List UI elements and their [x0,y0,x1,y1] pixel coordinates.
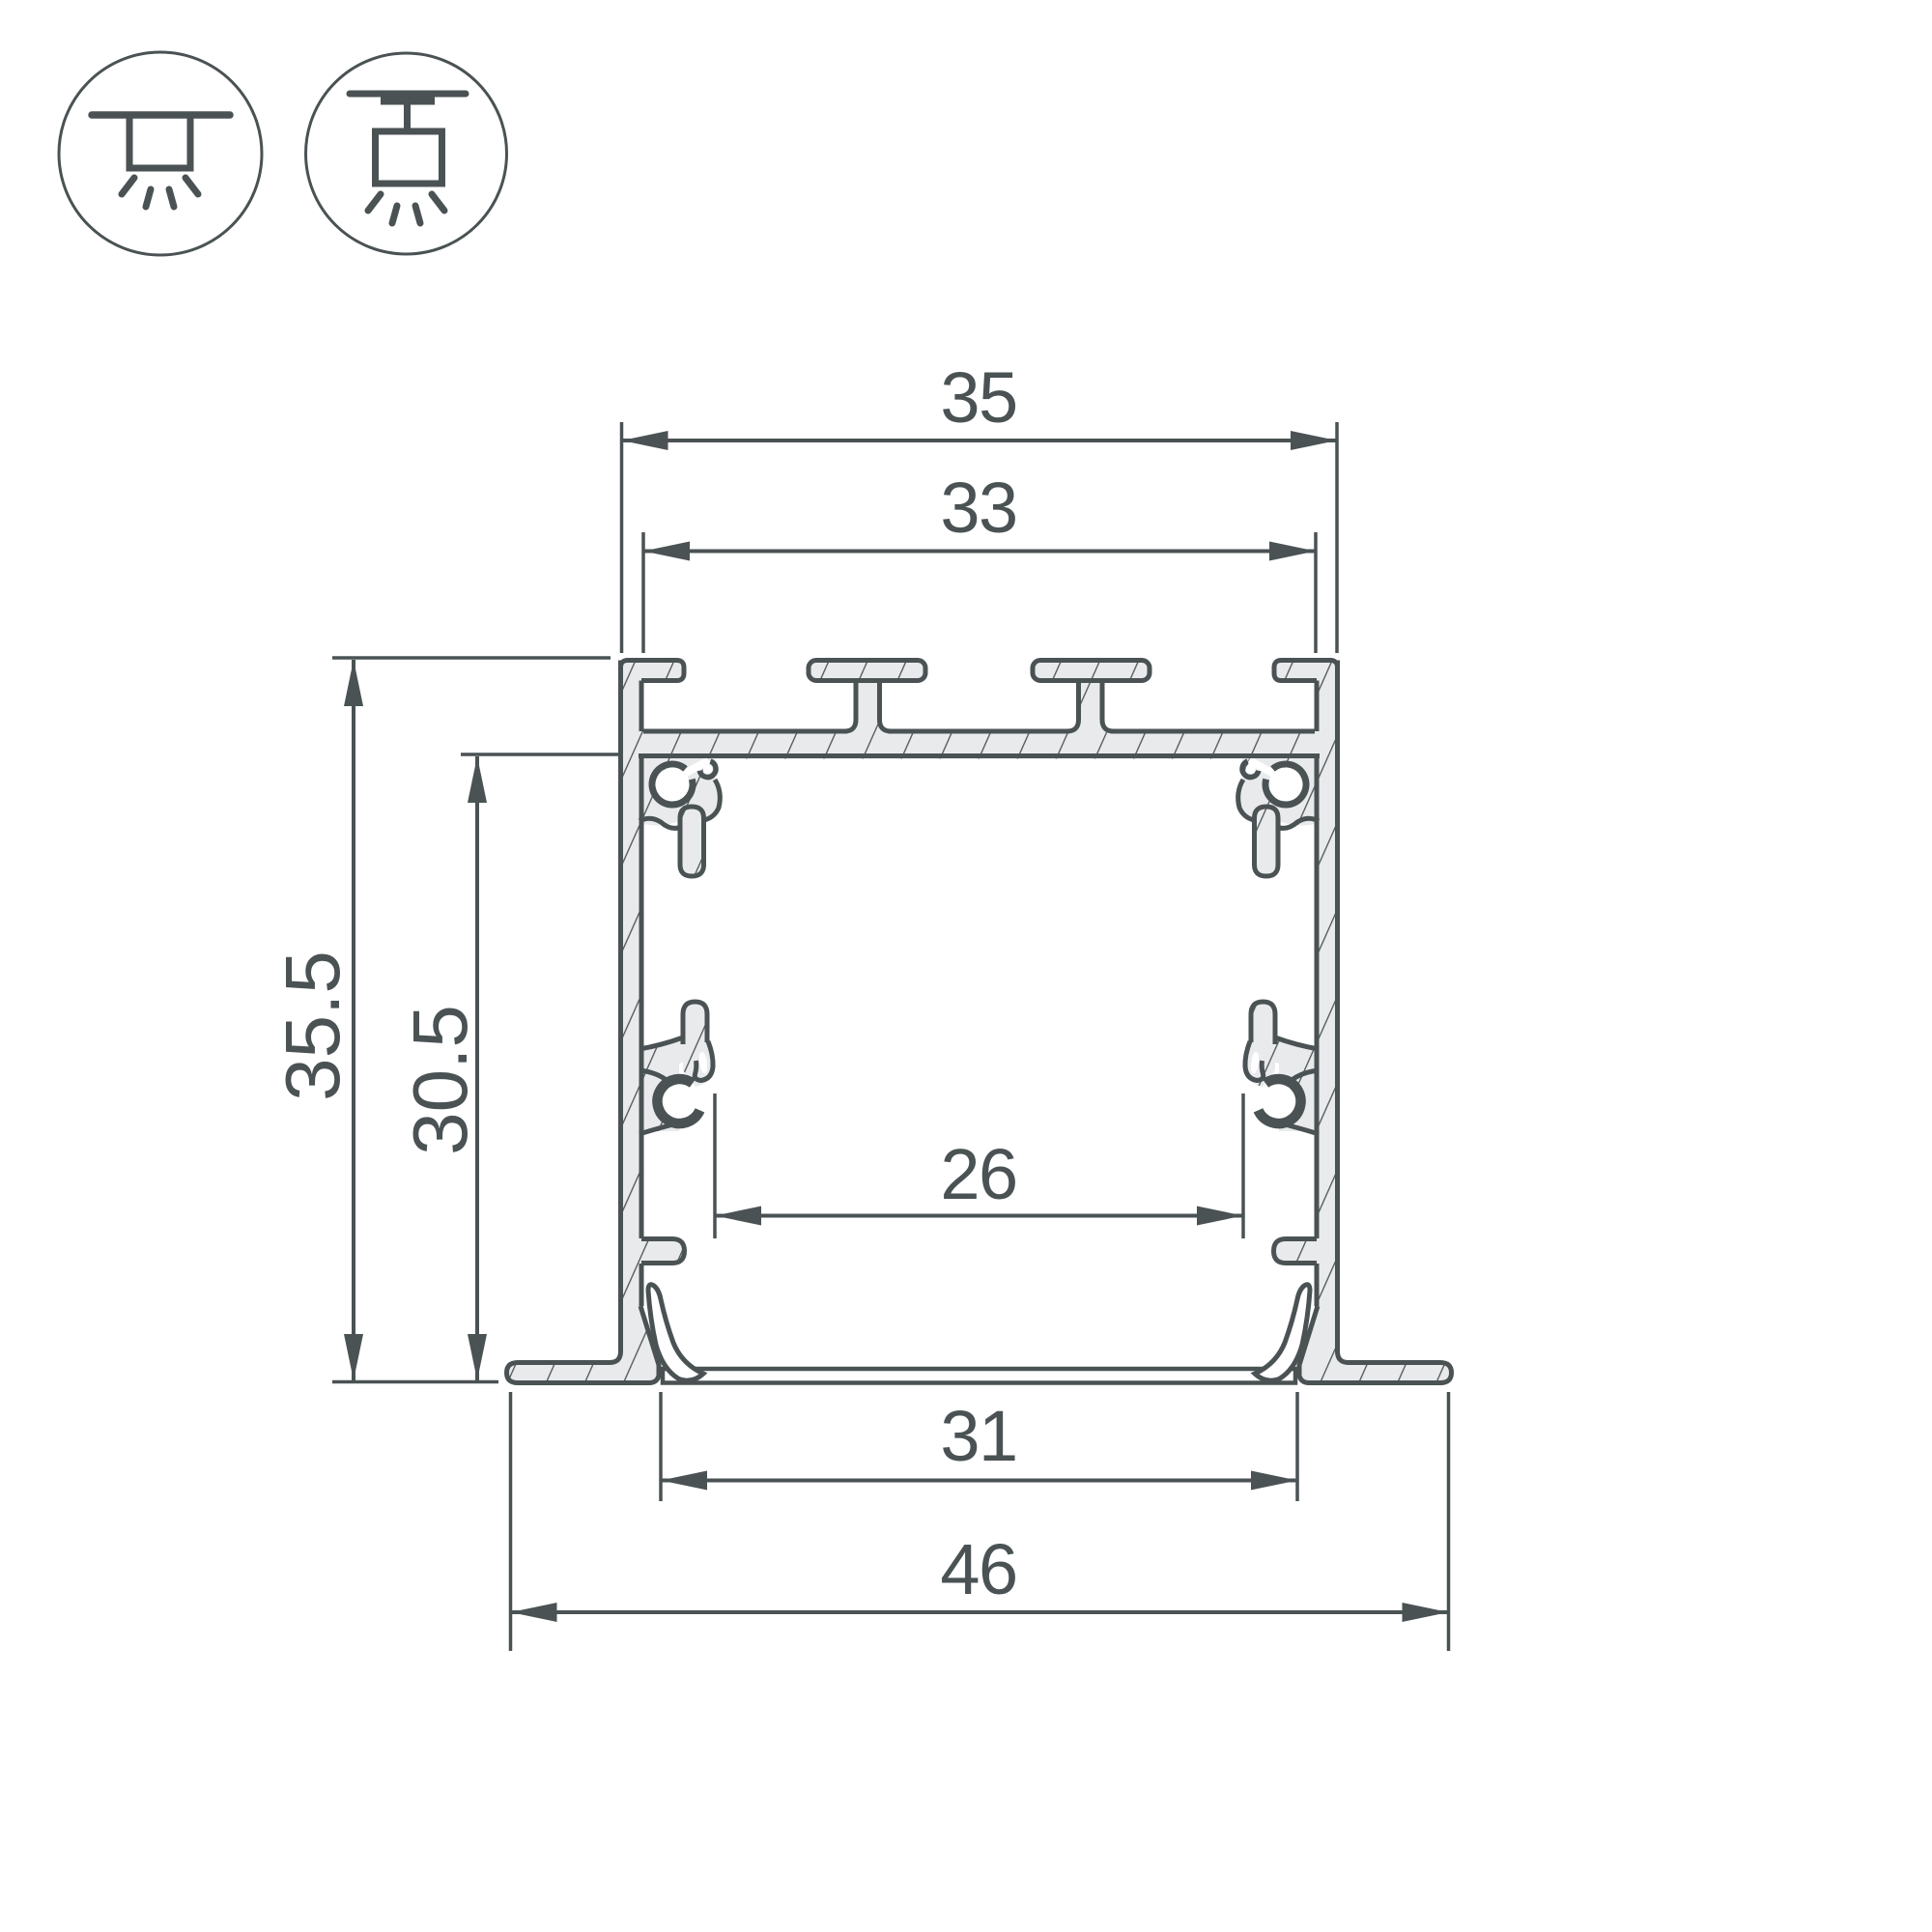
svg-text:26: 26 [940,1134,1016,1214]
svg-text:46: 46 [940,1529,1016,1609]
svg-text:35.5: 35.5 [270,951,355,1101]
svg-text:35: 35 [940,357,1016,438]
svg-text:31: 31 [940,1396,1016,1476]
svg-text:30.5: 30.5 [397,1005,483,1155]
svg-text:33: 33 [940,468,1016,548]
